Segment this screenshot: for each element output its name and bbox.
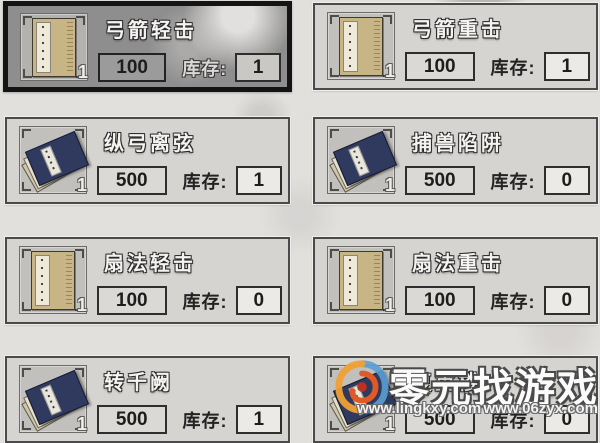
price-box: 500: [97, 405, 167, 434]
stock-label: 库存:: [183, 168, 228, 194]
item-card[interactable]: 1 弓箭轻击 100 库存: 1: [3, 1, 292, 92]
book-glyph: [31, 251, 75, 310]
icon-count-badge: 1: [77, 175, 87, 196]
skill-book-icon: 1: [20, 13, 88, 81]
item-title: 复重楼: [412, 366, 481, 395]
icon-count-badge: 1: [78, 62, 88, 83]
item-title: 弓箭重击: [412, 13, 504, 42]
stock-label: 库存:: [183, 407, 228, 433]
item-card[interactable]: 1 捕兽陷阱 500 库存: 0: [313, 117, 598, 204]
icon-count-badge: 1: [385, 414, 395, 435]
item-title: 纵弓离弦: [104, 127, 196, 156]
book-glyph: [339, 17, 383, 76]
frame-corner: [383, 249, 392, 258]
price-box: 500: [405, 405, 475, 434]
skill-books-stack-icon: 1: [327, 365, 395, 433]
stock-label: 库存:: [491, 407, 536, 433]
frame-corner: [330, 68, 339, 77]
item-card[interactable]: 1 转千阙 500 库存: 1: [5, 356, 290, 443]
item-title: 弓箭轻击: [105, 14, 197, 43]
skill-book-icon: 1: [327, 12, 395, 80]
stock-box: 0: [236, 286, 282, 315]
stock-box: 0: [544, 166, 590, 195]
skill-book-icon: 1: [19, 246, 87, 314]
item-card[interactable]: 1 复重楼 500 库存: 0: [313, 356, 598, 443]
stock-label: 库存:: [491, 54, 536, 80]
icon-count-badge: 1: [385, 295, 395, 316]
icon-count-badge: 1: [77, 414, 87, 435]
stock-box: 1: [544, 52, 590, 81]
price-box: 100: [98, 53, 166, 82]
icon-count-badge: 1: [385, 175, 395, 196]
item-card[interactable]: 1 扇法重击 100 库存: 0: [313, 237, 598, 324]
icon-count-badge: 1: [385, 61, 395, 82]
stock-box: 0: [544, 286, 590, 315]
stock-label: 库存:: [491, 168, 536, 194]
stock-label: 库存:: [183, 288, 228, 314]
price-box: 100: [405, 286, 475, 315]
book-glyph: [339, 251, 383, 310]
skill-book-icon: 1: [327, 246, 395, 314]
frame-corner: [383, 15, 392, 24]
stock-box: 1: [236, 166, 282, 195]
stock-box: 1: [236, 405, 282, 434]
frame-corner: [330, 15, 339, 24]
price-box: 100: [405, 52, 475, 81]
item-card[interactable]: 1 纵弓离弦 500 库存: 1: [5, 117, 290, 204]
stock-label: 库存:: [182, 55, 227, 81]
book-glyph: [32, 18, 76, 77]
frame-corner: [330, 249, 339, 258]
frame-corner: [22, 249, 31, 258]
price-box: 500: [97, 166, 167, 195]
item-card[interactable]: 1 弓箭重击 100 库存: 1: [313, 3, 598, 90]
frame-corner: [76, 16, 85, 25]
icon-count-badge: 1: [77, 295, 87, 316]
stock-label: 库存:: [491, 288, 536, 314]
frame-corner: [23, 16, 32, 25]
stock-box: 1: [235, 53, 281, 82]
item-title: 捕兽陷阱: [412, 127, 504, 156]
skill-books-stack-icon: 1: [327, 126, 395, 194]
item-title: 转千阙: [104, 366, 173, 395]
price-box: 500: [405, 166, 475, 195]
item-card[interactable]: 1 扇法轻击 100 库存: 0: [5, 237, 290, 324]
frame-corner: [22, 302, 31, 311]
frame-corner: [330, 302, 339, 311]
item-title: 扇法重击: [412, 247, 504, 276]
price-box: 100: [97, 286, 167, 315]
stock-box: 0: [544, 405, 590, 434]
skill-books-stack-icon: 1: [19, 126, 87, 194]
item-title: 扇法轻击: [104, 247, 196, 276]
frame-corner: [75, 249, 84, 258]
skill-books-stack-icon: 1: [19, 365, 87, 433]
frame-corner: [23, 69, 32, 78]
